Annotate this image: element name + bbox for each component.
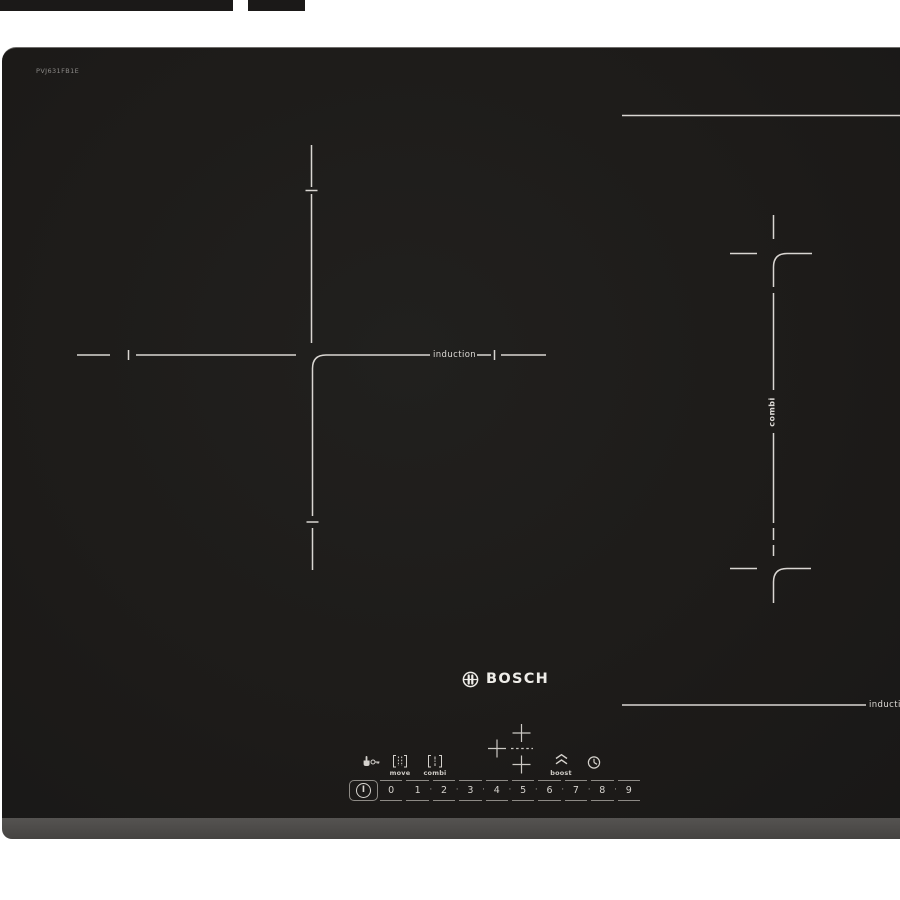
power-level-slider[interactable]: 01·2·3·4·5·6·7·8·9	[380, 780, 640, 801]
slider-level-value: 4	[494, 786, 500, 796]
slider-level-value: 2	[441, 786, 447, 796]
slider-level-value: 0	[388, 786, 394, 796]
combi-function-label: combi	[424, 769, 447, 777]
slider-level-5[interactable]: 5	[512, 780, 534, 801]
slider-level-value: 8	[599, 786, 605, 796]
timer-icon[interactable]	[588, 757, 599, 768]
boost-function-label: boost	[550, 769, 572, 777]
slider-level-2[interactable]: 2	[433, 780, 455, 801]
combi-icon[interactable]	[429, 756, 442, 768]
left-zone-induction-label: induction	[433, 350, 476, 360]
model-number: PVJ631FB1E	[36, 67, 79, 75]
slider-level-6[interactable]: 6	[538, 780, 560, 801]
move-icon[interactable]	[394, 756, 407, 768]
slider-level-4[interactable]: 4	[486, 780, 508, 801]
combi-zone-label: combi	[768, 397, 777, 427]
slider-level-value: 6	[547, 786, 553, 796]
bosch-armature-icon	[462, 671, 479, 688]
slider-level-value: 1	[415, 786, 421, 796]
slider-level-0[interactable]: 0	[380, 780, 402, 801]
bosch-logo: BOSCH	[462, 668, 549, 691]
boost-icon[interactable]	[556, 755, 567, 764]
power-icon: I	[356, 783, 372, 799]
slider-level-1[interactable]: 1	[406, 780, 428, 801]
slider-level-9[interactable]: 9	[618, 780, 640, 801]
slider-level-value: 3	[467, 786, 473, 796]
product-photo: PVJ631FB1E induction combi induction BOS…	[0, 0, 900, 900]
right-zone-induction-label: induction	[869, 700, 900, 710]
slider-level-3[interactable]: 3	[459, 780, 481, 801]
power-button[interactable]: I	[349, 780, 378, 801]
slider-level-8[interactable]: 8	[591, 780, 613, 801]
bosch-wordmark: BOSCH	[486, 672, 549, 687]
slider-level-value: 5	[520, 786, 526, 796]
zone-select-crosses[interactable]	[488, 724, 533, 774]
zone-markings	[0, 0, 900, 900]
child-lock-icon[interactable]	[364, 756, 380, 766]
slider-level-value: 9	[626, 786, 632, 796]
slider-level-value: 7	[573, 786, 579, 796]
right-zone-marking	[622, 116, 900, 706]
slider-level-7[interactable]: 7	[565, 780, 587, 801]
move-function-label: move	[390, 769, 411, 777]
power-symbol: I	[362, 786, 365, 795]
